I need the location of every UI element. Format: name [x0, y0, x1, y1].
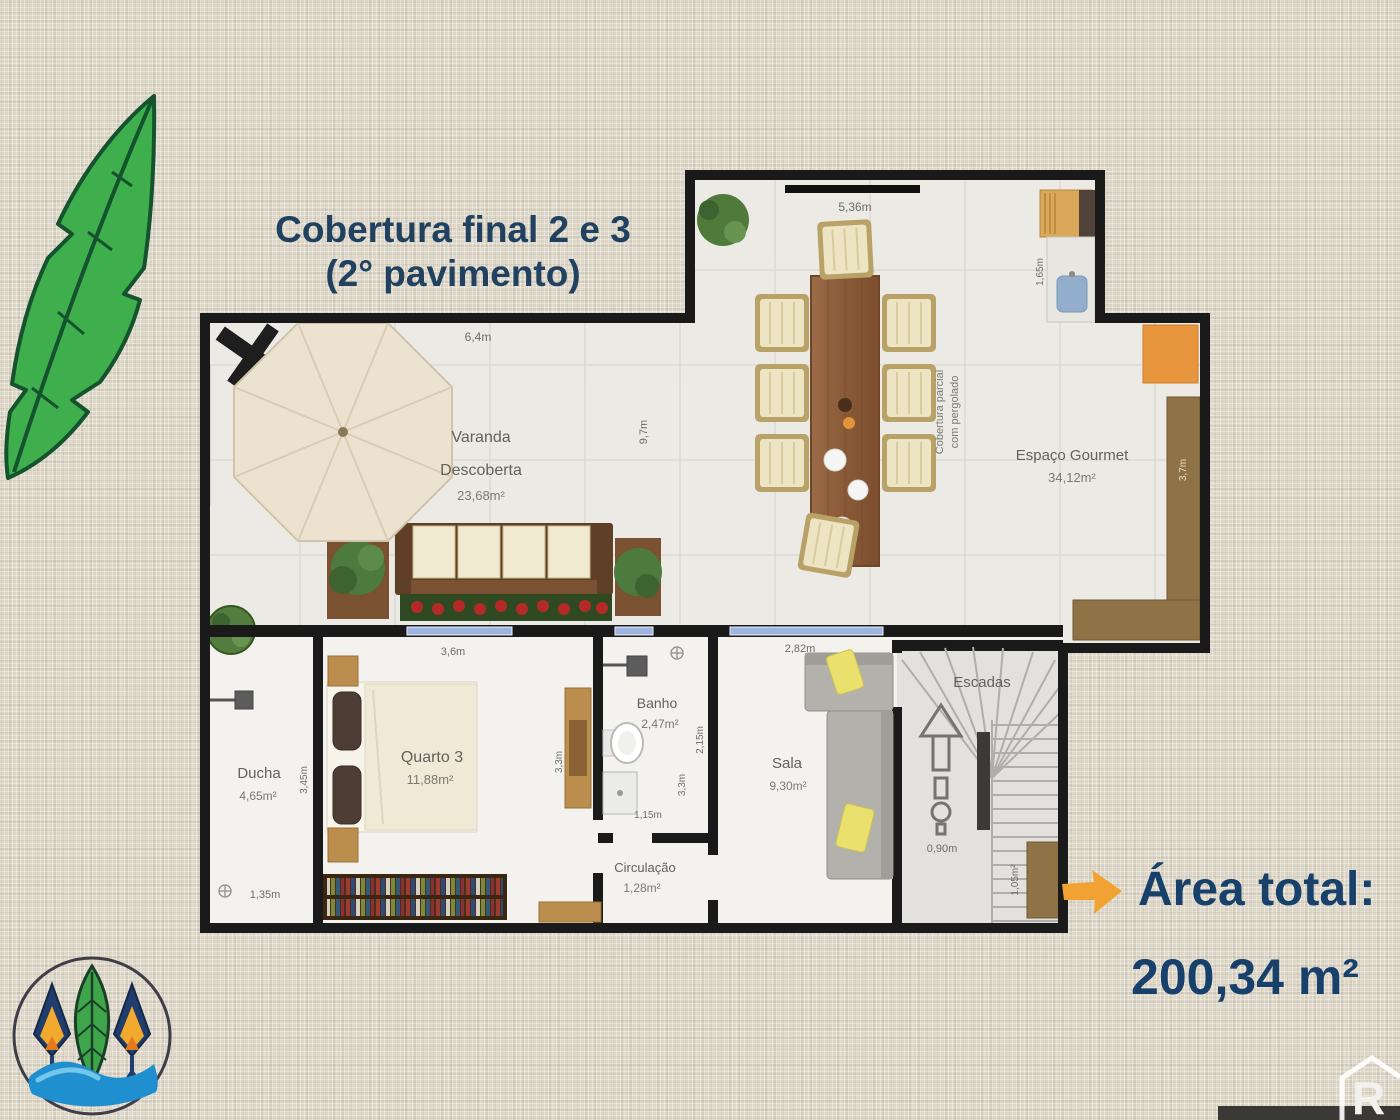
label-banho: Banho	[637, 695, 678, 711]
label-ducha-area: 4,65m²	[239, 789, 276, 803]
floorplan-page: Cobertura final 2 e 3 (2° pavimento) R	[0, 0, 1400, 1120]
dim-banho-depth: 2,15m	[695, 726, 706, 754]
label-varanda-line2: Descoberta	[440, 462, 522, 479]
label-circulacao: Circulação	[614, 860, 675, 875]
label-sala: Sala	[772, 755, 803, 772]
bench	[539, 902, 601, 922]
grill-counter	[1143, 325, 1198, 383]
total-area-label: Área total:	[1138, 862, 1375, 917]
dim-sala-width: 2,82m	[785, 643, 816, 655]
flower-planter	[400, 594, 612, 621]
floor-plan: Varanda Descoberta 23,68m² Espaço Gourme…	[195, 160, 1255, 945]
dim-varanda-depth: 9,7m	[638, 420, 650, 444]
total-area-value: 200,34 m²	[1100, 948, 1390, 1006]
label-varanda-line1: Varanda	[451, 429, 510, 446]
dim-quarto-width: 3,6m	[441, 646, 465, 658]
dim-stairs-width: 0,90m	[927, 843, 958, 855]
orange-arrow-icon	[1062, 870, 1124, 914]
dim-ducha-depth: 3,45m	[299, 766, 310, 794]
dim-sala-depth: 3,3m	[677, 774, 688, 796]
svg-text:Cobertura parcial: Cobertura parcial	[934, 370, 946, 454]
svg-text:com pergolado: com pergolado	[949, 376, 961, 449]
planter-box-left	[327, 535, 389, 619]
dim-ducha-width: 1,35m	[250, 889, 281, 901]
dim-counter-width: 1,65m	[1035, 258, 1046, 286]
label-quarto: Quarto 3	[401, 749, 463, 766]
dim-stairs-area: 1,05m²	[1010, 864, 1021, 896]
plant-gourmet	[697, 194, 749, 246]
corner-watermark-letter: R	[1352, 1072, 1385, 1120]
label-circulacao-area: 1,28m²	[623, 881, 660, 895]
dim-gourmet-width: 5,36m	[838, 200, 871, 214]
company-logo	[6, 950, 178, 1120]
corner-watermark: R	[1322, 1042, 1400, 1120]
outdoor-sofa	[395, 523, 613, 595]
label-quarto-area: 11,88m²	[407, 772, 454, 787]
dimension-bar	[785, 185, 920, 193]
desk	[565, 688, 591, 808]
banana-leaf-illustration	[0, 82, 172, 482]
planter-box-right	[614, 538, 662, 616]
label-varanda-area: 23,68m²	[457, 488, 505, 503]
dim-banho-width: 1,15m	[634, 810, 662, 821]
dim-gourmet-side: 3,7m	[1178, 459, 1189, 481]
dim-varanda-width: 6,4m	[465, 330, 492, 344]
nightstand-top	[328, 656, 358, 686]
shower-stall	[603, 772, 637, 814]
label-banho-area: 2,47m²	[641, 717, 678, 731]
label-escadas: Escadas	[953, 674, 1011, 691]
gourmet-counter-top	[1040, 190, 1100, 322]
dim-quarto-depth: 3,3m	[554, 751, 565, 773]
stairs-cabinet	[1027, 842, 1061, 918]
label-ducha: Ducha	[237, 765, 281, 782]
nightstand-bottom	[328, 828, 358, 862]
label-sala-area: 9,30m²	[769, 779, 806, 793]
label-gourmet-area: 34,12m²	[1048, 470, 1096, 485]
bookshelf	[323, 874, 507, 920]
label-gourmet: Espaço Gourmet	[1016, 447, 1129, 464]
